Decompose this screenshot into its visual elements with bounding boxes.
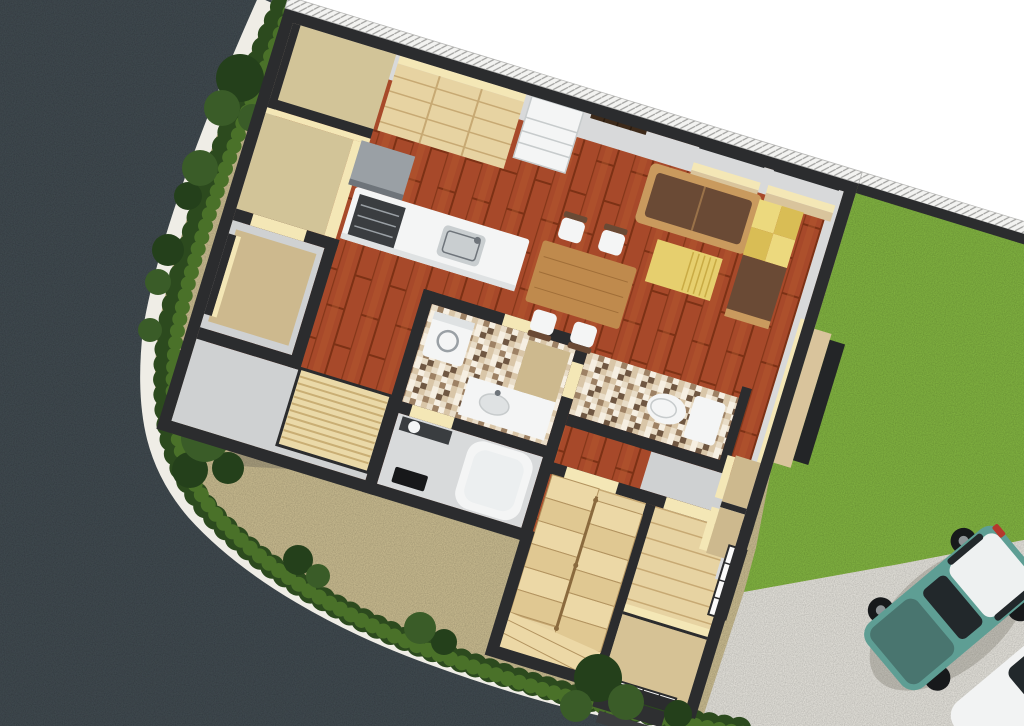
floor-plan-render [0, 0, 1024, 726]
tree-canopy [404, 612, 436, 644]
tree-canopy [608, 684, 644, 720]
tree-canopy [306, 564, 330, 588]
tree-canopy [560, 690, 592, 722]
tree-canopy [138, 318, 162, 342]
tree-canopy [152, 234, 184, 266]
tree-canopy [174, 182, 202, 210]
tree-canopy [182, 150, 218, 186]
scene-svg [0, 0, 1024, 726]
tree-canopy [204, 90, 240, 126]
tree-canopy [145, 269, 171, 295]
